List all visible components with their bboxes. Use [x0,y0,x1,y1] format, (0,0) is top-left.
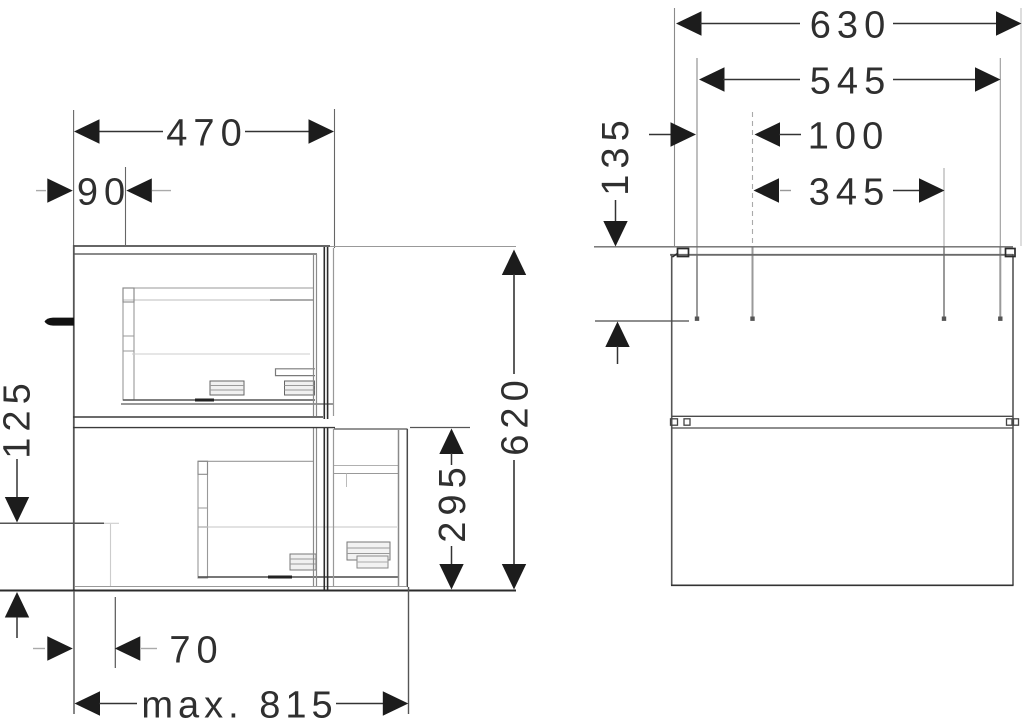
svg-text:125: 125 [0,377,39,458]
svg-text:max. 815: max. 815 [141,685,337,725]
svg-text:295: 295 [432,461,474,542]
svg-text:345: 345 [809,172,890,214]
svg-text:545: 545 [810,61,891,103]
svg-text:70: 70 [169,630,223,672]
svg-text:100: 100 [808,116,889,158]
svg-text:620: 620 [495,374,537,455]
svg-text:135: 135 [595,114,637,195]
svg-text:630: 630 [810,5,891,47]
svg-text:90: 90 [77,172,131,214]
svg-text:470: 470 [166,113,247,155]
